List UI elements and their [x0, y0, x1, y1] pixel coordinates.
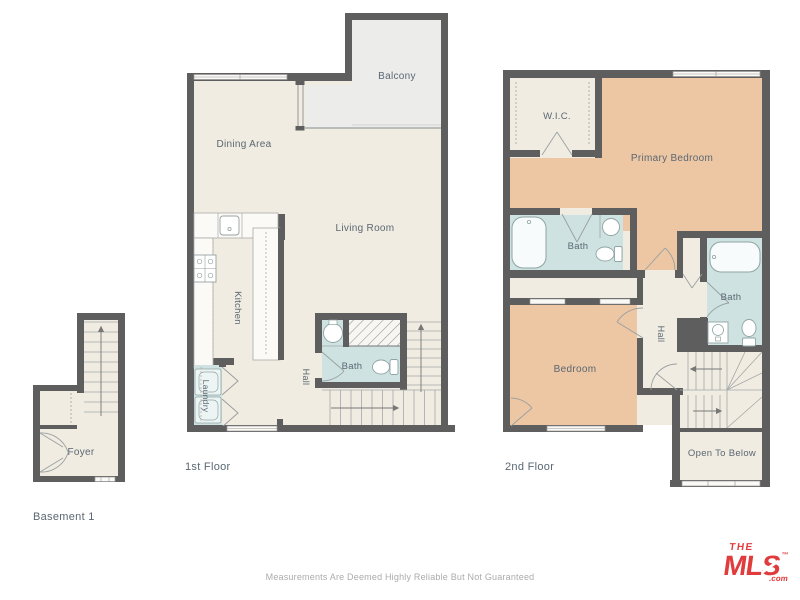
kitchen-island	[253, 228, 284, 360]
room-label-kitchen: Kitchen	[232, 291, 243, 325]
stove-icon	[194, 255, 216, 282]
room-label-living-room: Living Room	[336, 223, 395, 234]
toilet-icon	[373, 360, 399, 375]
second-floor-plan: Bath	[503, 70, 770, 487]
room-label-hall-2f: Hall	[656, 326, 666, 343]
room-label-primary-bath: Bath	[568, 241, 589, 252]
bathtub-icon	[512, 217, 546, 268]
room-label-wic: W.I.C.	[543, 111, 571, 122]
room-label-laundry: Laundry	[201, 380, 211, 413]
floor-plan-drawing: Foyer Basement 1	[0, 0, 800, 600]
room-label-foyer: Foyer	[67, 447, 94, 458]
understair-storage	[349, 320, 400, 346]
room-primary-bedroom-2	[510, 158, 602, 208]
room-label-hall-1f: Hall	[301, 369, 311, 386]
floor-plan-page: Foyer Basement 1	[0, 0, 800, 600]
sink-icon-3	[708, 322, 728, 343]
first-floor-bath: Bath	[315, 313, 407, 390]
kitchen-sink-icon	[220, 216, 239, 235]
basement-floor-plan: Foyer Basement 1	[33, 313, 125, 523]
sink-icon	[324, 324, 343, 343]
mls-logo: THE MLS™ .com	[721, 543, 793, 583]
disclaimer-text: Measurements Are Deemed Highly Reliable …	[0, 572, 800, 582]
room-label-dining-area: Dining Area	[217, 139, 272, 150]
bathtub-icon-2	[710, 242, 760, 272]
toilet-icon-2	[596, 247, 622, 262]
stair-openbelow-fill	[680, 352, 762, 480]
basement-entry-window	[95, 477, 115, 482]
dining-window	[194, 75, 287, 80]
room-label-open-to-below: Open To Below	[688, 448, 756, 459]
logo-mls-text: MLS™	[722, 553, 792, 578]
room-label-balcony: Balcony	[378, 71, 416, 82]
floor-label-1st: 1st Floor	[185, 461, 231, 473]
room-label-bath-2f: Bath	[721, 292, 742, 303]
toilet-icon-3	[742, 320, 756, 347]
room-label-primary-bedroom: Primary Bedroom	[631, 153, 713, 164]
floor-label-basement: Basement 1	[33, 511, 95, 523]
living-room-window	[227, 426, 277, 431]
sink-icon-2	[603, 219, 620, 236]
room-label-bedroom: Bedroom	[554, 364, 597, 375]
room-label-bath-1f: Bath	[342, 361, 363, 372]
room-primary-bedroom-notch	[637, 231, 677, 270]
floor-label-2nd: 2nd Floor	[505, 461, 554, 473]
logo-trademark: ™	[781, 552, 789, 559]
first-floor-plan: Bath Balcony Dining Area Living Room Kit…	[185, 13, 455, 473]
